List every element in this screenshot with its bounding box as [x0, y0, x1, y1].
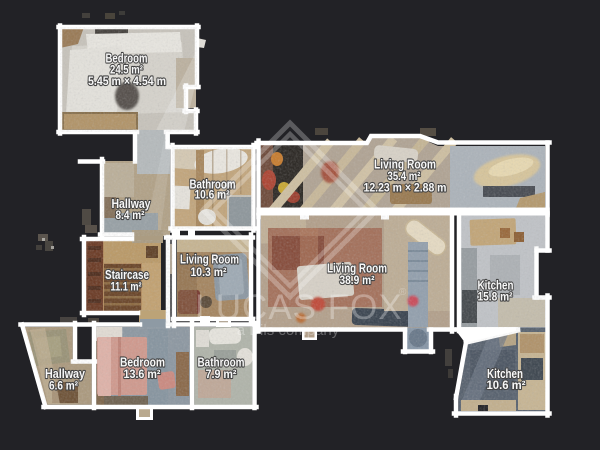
svg-text:a Dils company: a Dils company — [237, 322, 340, 339]
svg-text:®: ® — [399, 287, 407, 298]
